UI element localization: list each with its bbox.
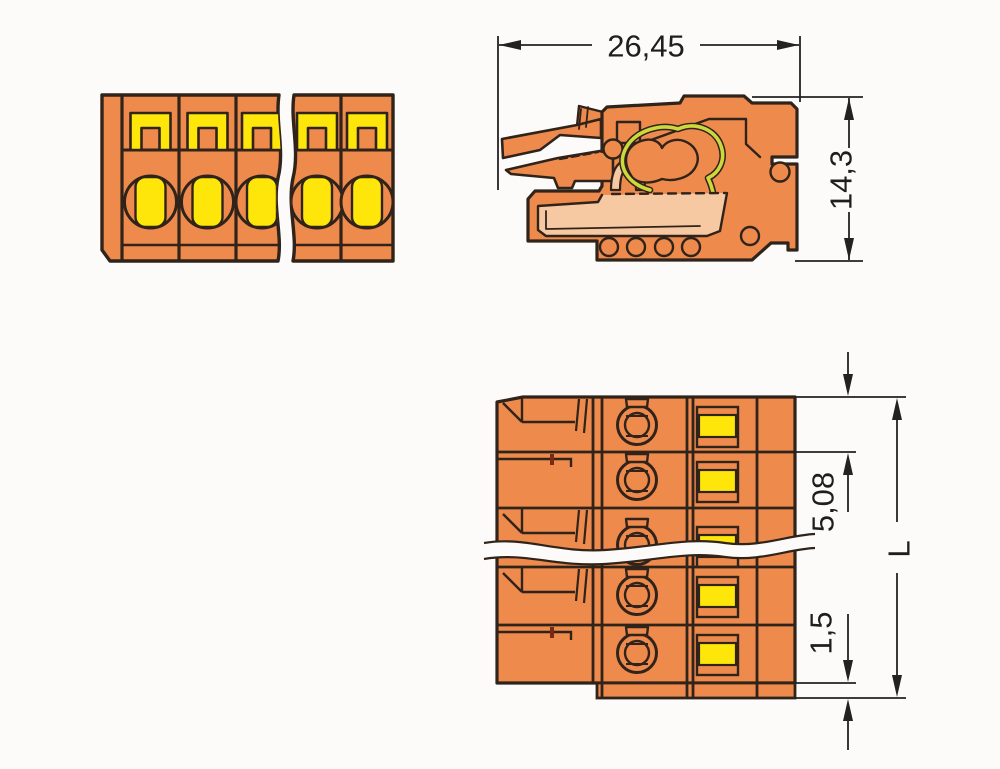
connector-drawing: 26,45 14,3 5,08 1,5 L [0, 0, 1000, 769]
wire-entry [125, 176, 177, 228]
clamp-spring-pocket [626, 140, 698, 183]
bottom-protrusion [597, 683, 795, 698]
wire-entry [341, 176, 393, 228]
wire-entry [291, 176, 343, 228]
dim-total-length: L [882, 540, 917, 557]
dim-pole-pitch: 5,08 [806, 472, 841, 532]
front-view [102, 95, 393, 261]
latch [506, 151, 613, 188]
dim-rear-offset: 1,5 [804, 611, 839, 654]
wire-entry [236, 176, 288, 228]
dim-total-width: 26,45 [607, 29, 685, 64]
side-view [502, 96, 797, 260]
bottom-view [484, 397, 815, 698]
wire-entry [182, 176, 234, 228]
technical-drawing-canvas: 26,45 14,3 5,08 1,5 L [0, 0, 1000, 769]
dim-total-height: 14,3 [824, 150, 859, 210]
